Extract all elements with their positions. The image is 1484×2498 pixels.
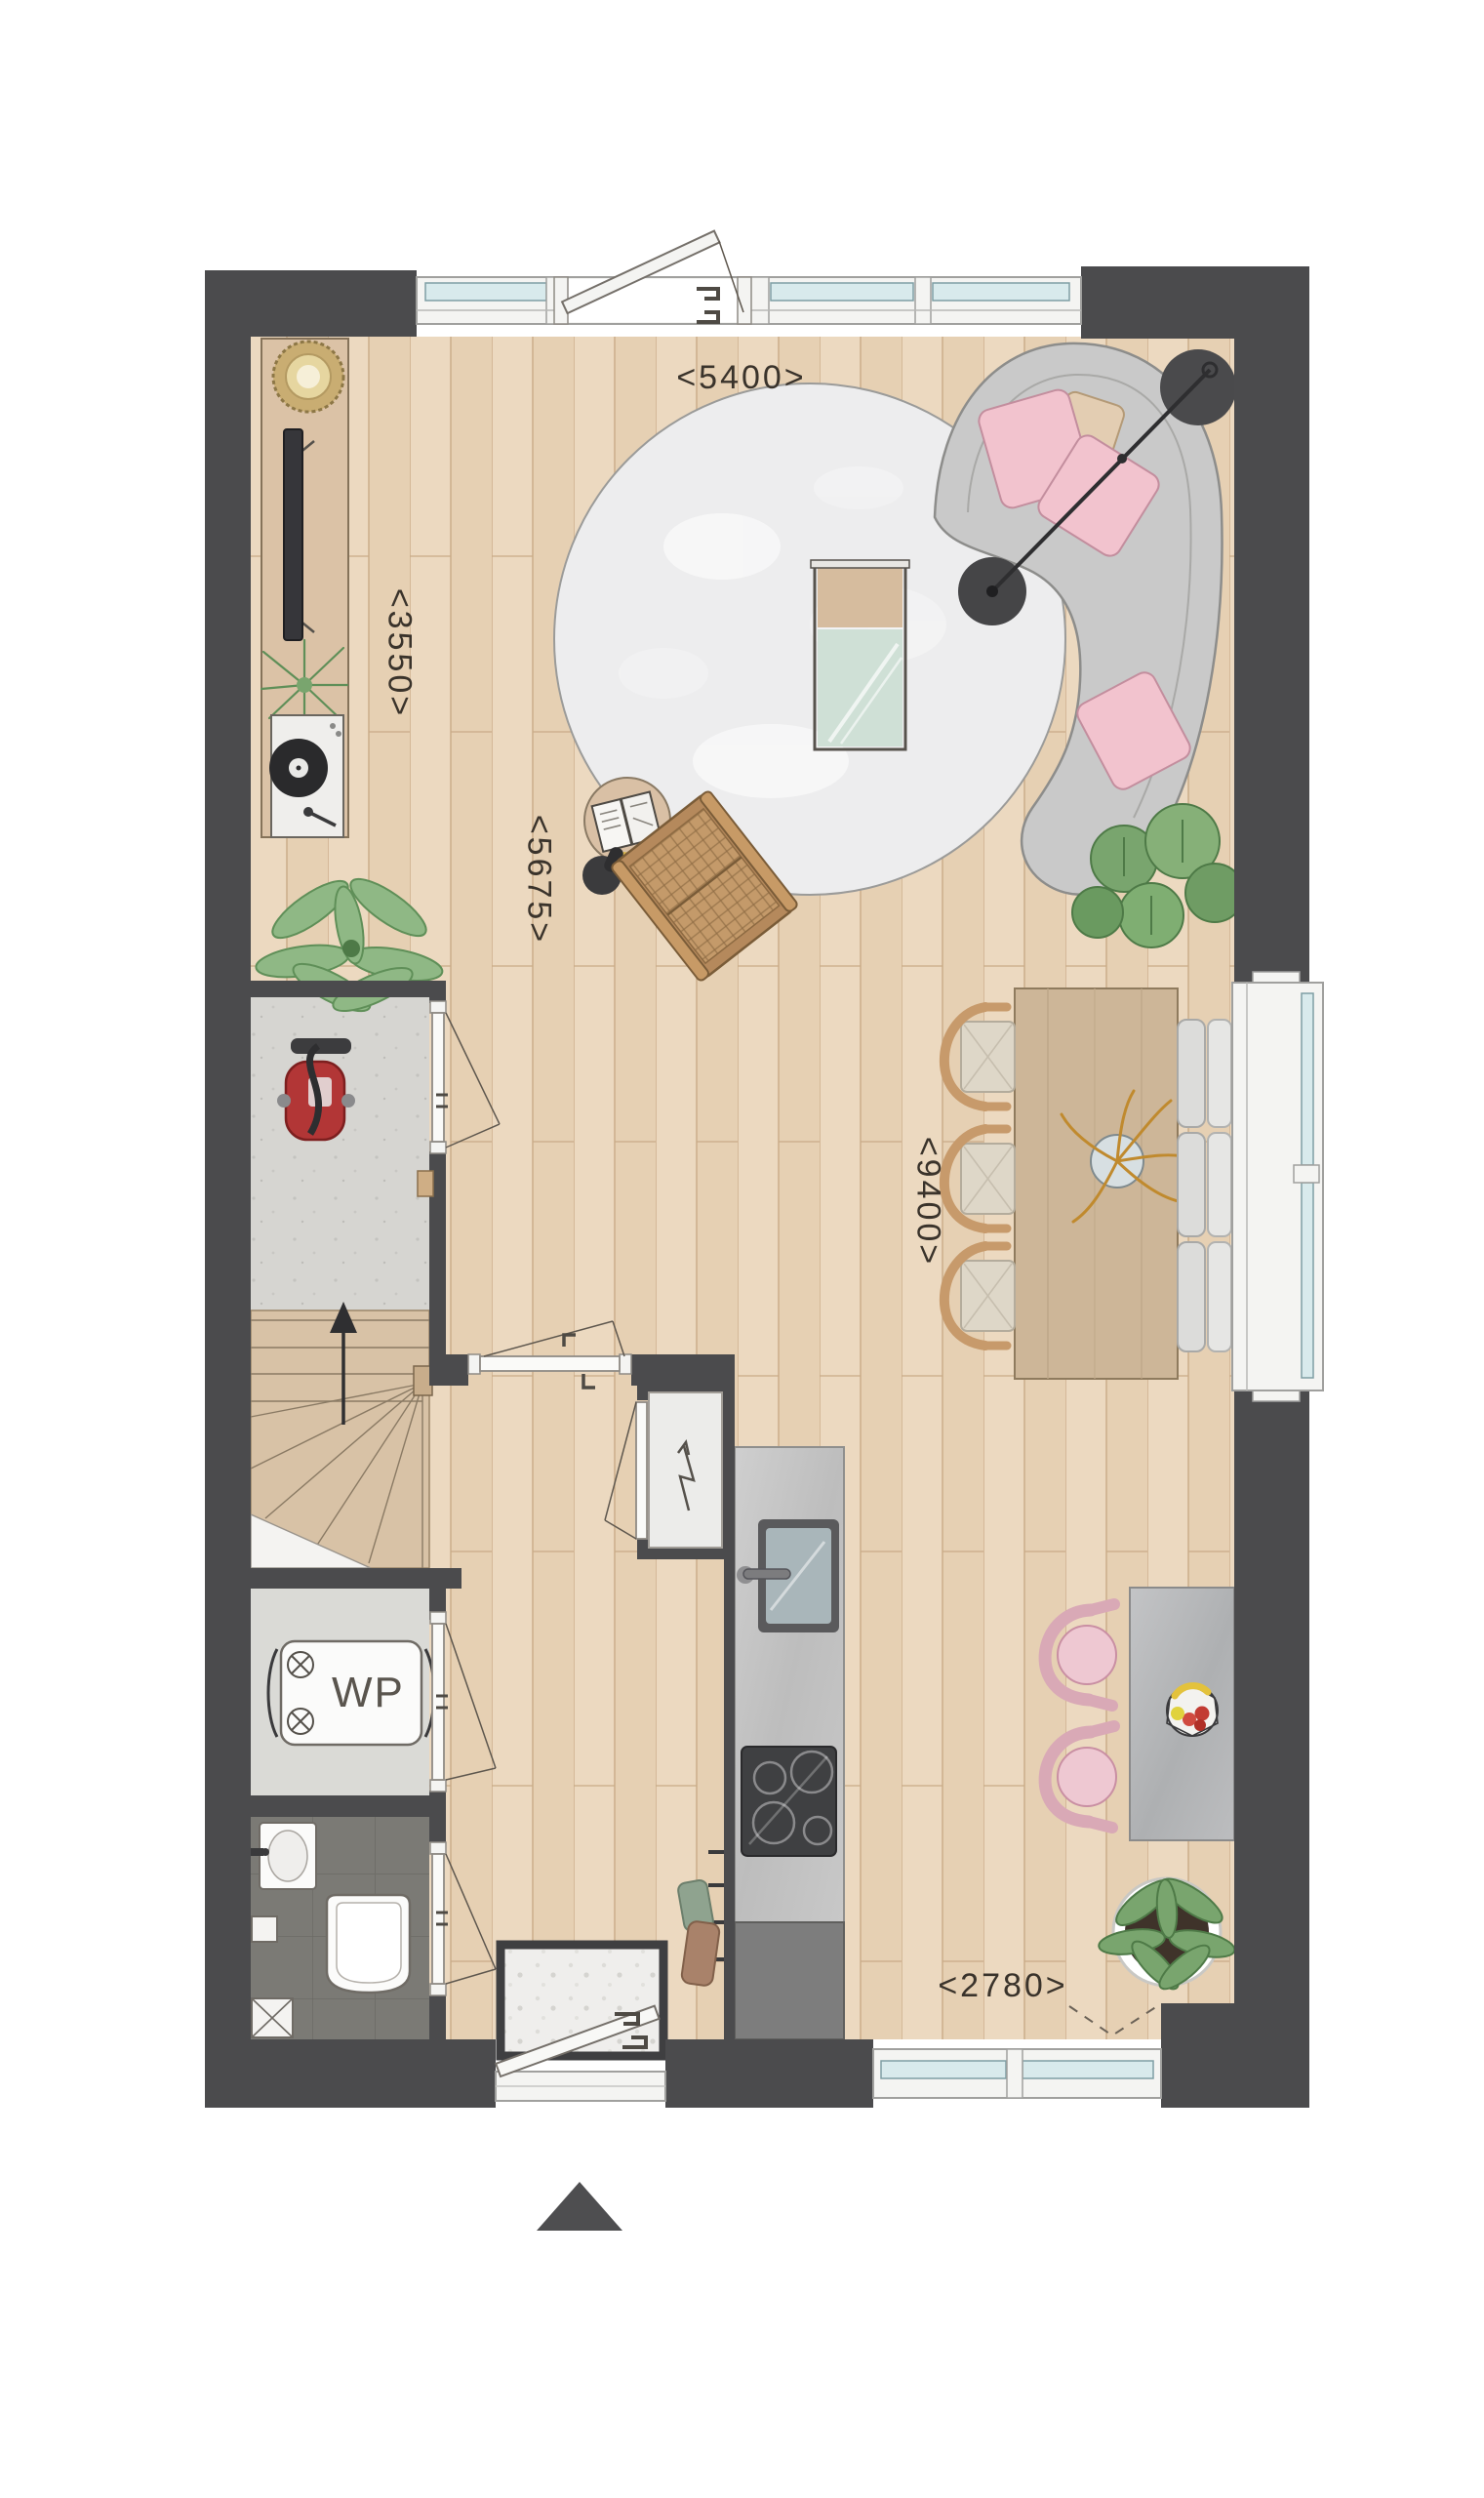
fruit-basket	[1167, 1685, 1218, 1736]
window-icon	[1023, 2061, 1153, 2078]
coffee-table	[811, 560, 909, 749]
record-player	[269, 715, 343, 837]
window-icon	[1302, 1183, 1313, 1378]
wall-right-lower	[1234, 1390, 1309, 2003]
door-leaf	[636, 1402, 647, 1539]
wall-left	[205, 270, 251, 2108]
window-icon	[1302, 993, 1313, 1165]
tall-cabinet	[735, 1922, 844, 2039]
wall-wp-toilet	[251, 1795, 429, 1817]
wall-bottom-mid	[665, 2039, 873, 2108]
window-icon	[881, 2061, 1006, 2078]
wall-stair-bottom	[251, 1568, 461, 1589]
wall-bottom-left	[205, 2039, 496, 2108]
cistern-box	[252, 1916, 277, 1942]
window-bench	[1178, 1020, 1231, 1351]
drain-icon	[252, 1998, 293, 2037]
wall-kitchen	[724, 1559, 735, 2039]
north-arrow-icon	[537, 2182, 622, 2231]
window-icon	[771, 283, 913, 301]
toilet	[327, 1895, 410, 1993]
window-icon	[425, 283, 546, 301]
dimension-top: <5400>	[644, 359, 839, 397]
wall-right-upper	[1234, 339, 1309, 983]
dimension-left: <3550>	[381, 556, 419, 751]
dimension-kitchen: <2780>	[905, 1967, 1101, 2005]
bay-window	[1232, 972, 1323, 1401]
door-stop	[418, 1171, 433, 1196]
wall-top-left-block	[205, 270, 417, 337]
round-mirror	[273, 342, 343, 412]
dimension-living: <5675>	[520, 783, 558, 978]
heat-pump-label: WP	[332, 1669, 405, 1717]
cooktop	[742, 1747, 836, 1856]
dimension-dining: <9400>	[909, 1105, 947, 1300]
dining-table	[1015, 988, 1178, 1379]
wash-basin	[250, 1823, 316, 1889]
wall-top-right-block	[1081, 266, 1309, 339]
staircase	[251, 1302, 432, 1568]
window-icon	[933, 283, 1069, 301]
wall-hall-top	[251, 981, 446, 997]
floor-plan-canvas: <5400> <3550> <5675> <9400> <2780> WP	[0, 0, 1484, 2498]
bottom-windows	[873, 2049, 1161, 2098]
wall-bottom-right-block	[1161, 2003, 1309, 2108]
